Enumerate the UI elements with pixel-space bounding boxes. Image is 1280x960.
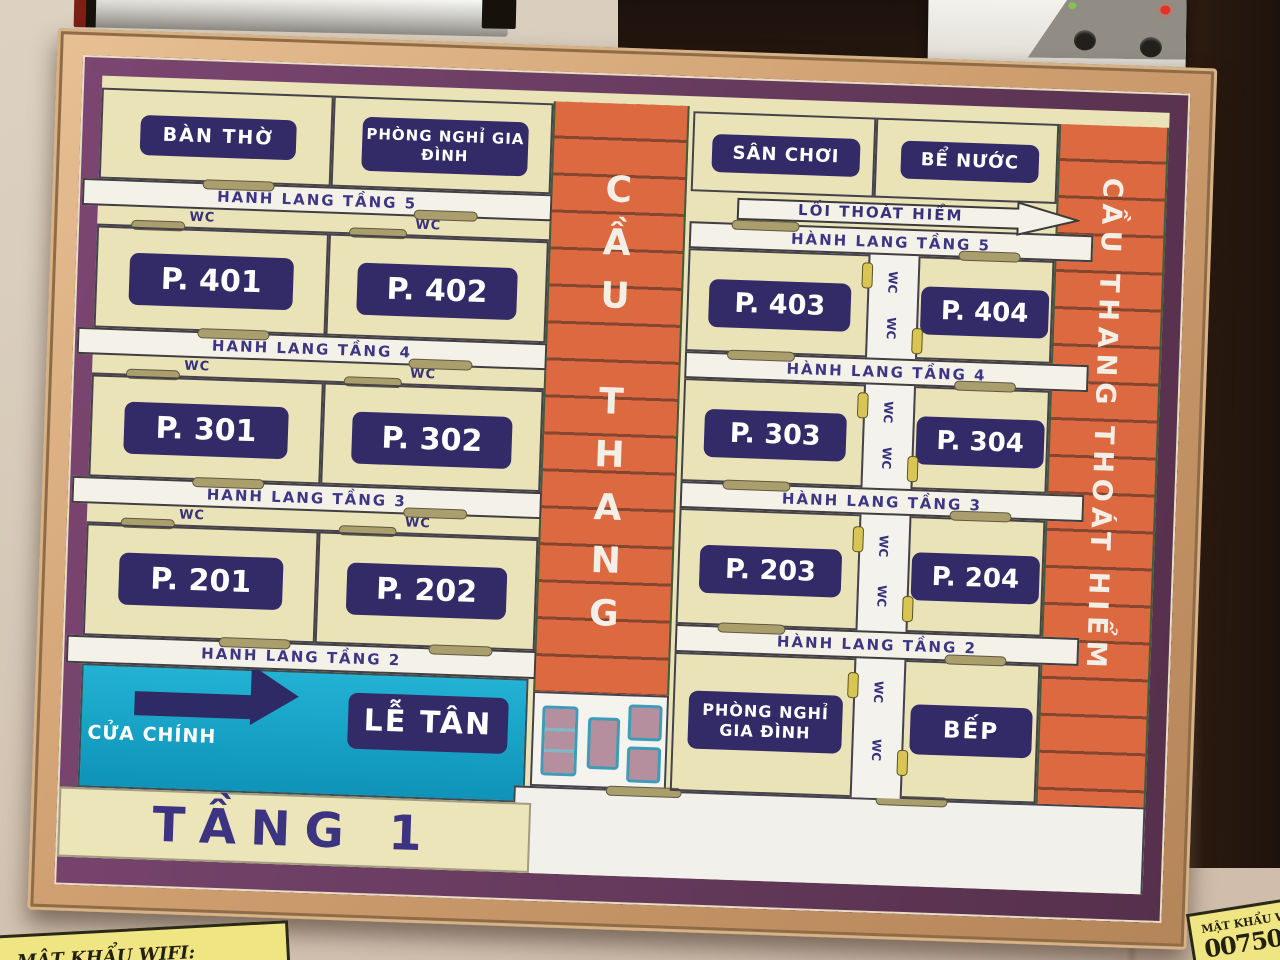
room-label: BỂ NƯỚC [900, 141, 1039, 184]
room-label: P. 404 [920, 286, 1050, 338]
room-label: P. 304 [915, 416, 1045, 468]
room-label: P. 202 [346, 562, 508, 620]
room-be-nuoc: BỂ NƯỚC [874, 118, 1060, 204]
entrance-label: CỬA CHÍNH [87, 721, 217, 747]
wc-label: WC [869, 739, 884, 762]
room-label: BÀN THỜ [140, 115, 297, 160]
lounge-room [530, 691, 669, 791]
hall-label: HÀNH LANG TẦNG 4 [212, 336, 413, 361]
door-marker [902, 596, 914, 622]
door-marker [944, 654, 1006, 666]
room-san-choi: SÂN CHƠI [691, 111, 877, 197]
room-label: PHÒNG NGHỈ GIA ĐÌNH [361, 117, 529, 177]
door-marker [852, 526, 864, 552]
entrance-arrow [134, 691, 253, 719]
door-marker [202, 179, 274, 192]
door-marker [192, 477, 264, 490]
wc-label: WC [884, 317, 899, 340]
room-label: P. 204 [911, 552, 1041, 604]
wc-label: WC [189, 210, 215, 226]
door-marker [428, 644, 492, 656]
room-204: P. 204 [905, 516, 1045, 637]
center-staircase-label: CẦU THANG [582, 169, 640, 647]
hall-label: HÀNH LANG TẦNG 3 [206, 485, 407, 510]
door-marker [727, 350, 795, 362]
wifi-note-right: MẬT KHẨU W 007505 [1186, 891, 1280, 960]
photo-of-floor-plan-sign: BÀN THỜ PHÒNG NGHỈ GIA ĐÌNH HÀNH LANG TẦ… [0, 0, 1280, 960]
room-402: P. 402 [325, 234, 548, 344]
red-led [1160, 5, 1170, 14]
wc-label: WC [871, 681, 886, 704]
wc-label: WC [184, 359, 210, 375]
reception-badge: LỄ TÂN [347, 693, 509, 755]
door-marker [857, 392, 869, 418]
room-303: P. 303 [681, 378, 866, 487]
room-304: P. 304 [910, 386, 1050, 494]
room-ban-tho: BÀN THỜ [99, 88, 334, 187]
door-marker [949, 510, 1011, 522]
room-label: BẾP [909, 704, 1033, 758]
door-marker [907, 456, 919, 482]
entrance-arrow-head [250, 665, 300, 727]
room-phong-nghi-top: PHÒNG NGHỈ GIA ĐÌNH [331, 96, 554, 195]
room-label: P. 401 [128, 253, 294, 311]
green-led [1068, 2, 1076, 9]
room-201: P. 201 [83, 523, 319, 643]
door-marker [958, 251, 1020, 263]
door-marker [954, 380, 1016, 392]
sign-frame: BÀN THỜ PHÒNG NGHỈ GIA ĐÌNH HÀNH LANG TẦ… [27, 28, 1217, 950]
room-label: P. 303 [703, 409, 847, 462]
room-label: P. 203 [699, 545, 843, 598]
wc-label: WC [885, 271, 900, 294]
hall-label: HÀNH LANG TẦNG 2 [201, 644, 402, 669]
table [586, 717, 620, 770]
room-label: P. 403 [708, 279, 852, 332]
room-301: P. 301 [88, 374, 323, 484]
door-marker [722, 479, 790, 491]
room-label: P. 402 [356, 263, 518, 321]
wc-label: WC [876, 535, 891, 558]
wifi-note-text: MẬT KHẨU WIFI: [16, 942, 195, 960]
wc-label: WC [881, 401, 896, 424]
chair [627, 704, 662, 741]
room-phong-nghi-bottom: PHÒNG NGHỈ GIA ĐÌNH [670, 652, 857, 797]
chair [626, 746, 661, 783]
hall-label: HÀNH LANG TẦNG 5 [217, 187, 418, 212]
room-bep: BẾP [900, 660, 1041, 804]
device-knob [1140, 37, 1162, 57]
door-marker [896, 750, 908, 776]
room-label: P. 302 [351, 412, 513, 470]
floor-plan-board: BÀN THỜ PHÒNG NGHỈ GIA ĐÌNH HÀNH LANG TẦ… [75, 76, 1170, 895]
room-202: P. 202 [315, 531, 539, 651]
wc-label: WC [179, 508, 205, 524]
center-staircase: CẦU THANG [533, 101, 690, 695]
room-404: P. 404 [915, 256, 1055, 364]
door-marker [717, 622, 785, 634]
room-401: P. 401 [94, 225, 329, 335]
room-label: P. 201 [118, 552, 284, 610]
sign-mat: BÀN THỜ PHÒNG NGHỈ GIA ĐÌNH HÀNH LANG TẦ… [54, 55, 1190, 923]
room-203: P. 203 [676, 508, 862, 630]
wc-label: WC [879, 447, 894, 470]
door-marker [197, 328, 269, 341]
wifi-note-left: MẬT KHẨU WIFI: [0, 920, 292, 960]
room-label: PHÒNG NGHỈ GIA ĐÌNH [687, 690, 843, 753]
door-marker [847, 672, 859, 698]
fixture-black-cap [86, 0, 97, 28]
room-label: SÂN CHƠI [711, 134, 860, 177]
wc-label: WC [874, 585, 889, 608]
fixture-end-cap [482, 0, 517, 29]
room-403: P. 403 [685, 248, 870, 357]
room-302: P. 302 [320, 382, 543, 492]
entrance-hall: CỬA CHÍNH LỄ TÂN [78, 663, 529, 803]
sofa [540, 705, 578, 776]
room-label: P. 301 [123, 402, 289, 460]
door-marker [911, 328, 923, 354]
door-marker [861, 262, 873, 288]
